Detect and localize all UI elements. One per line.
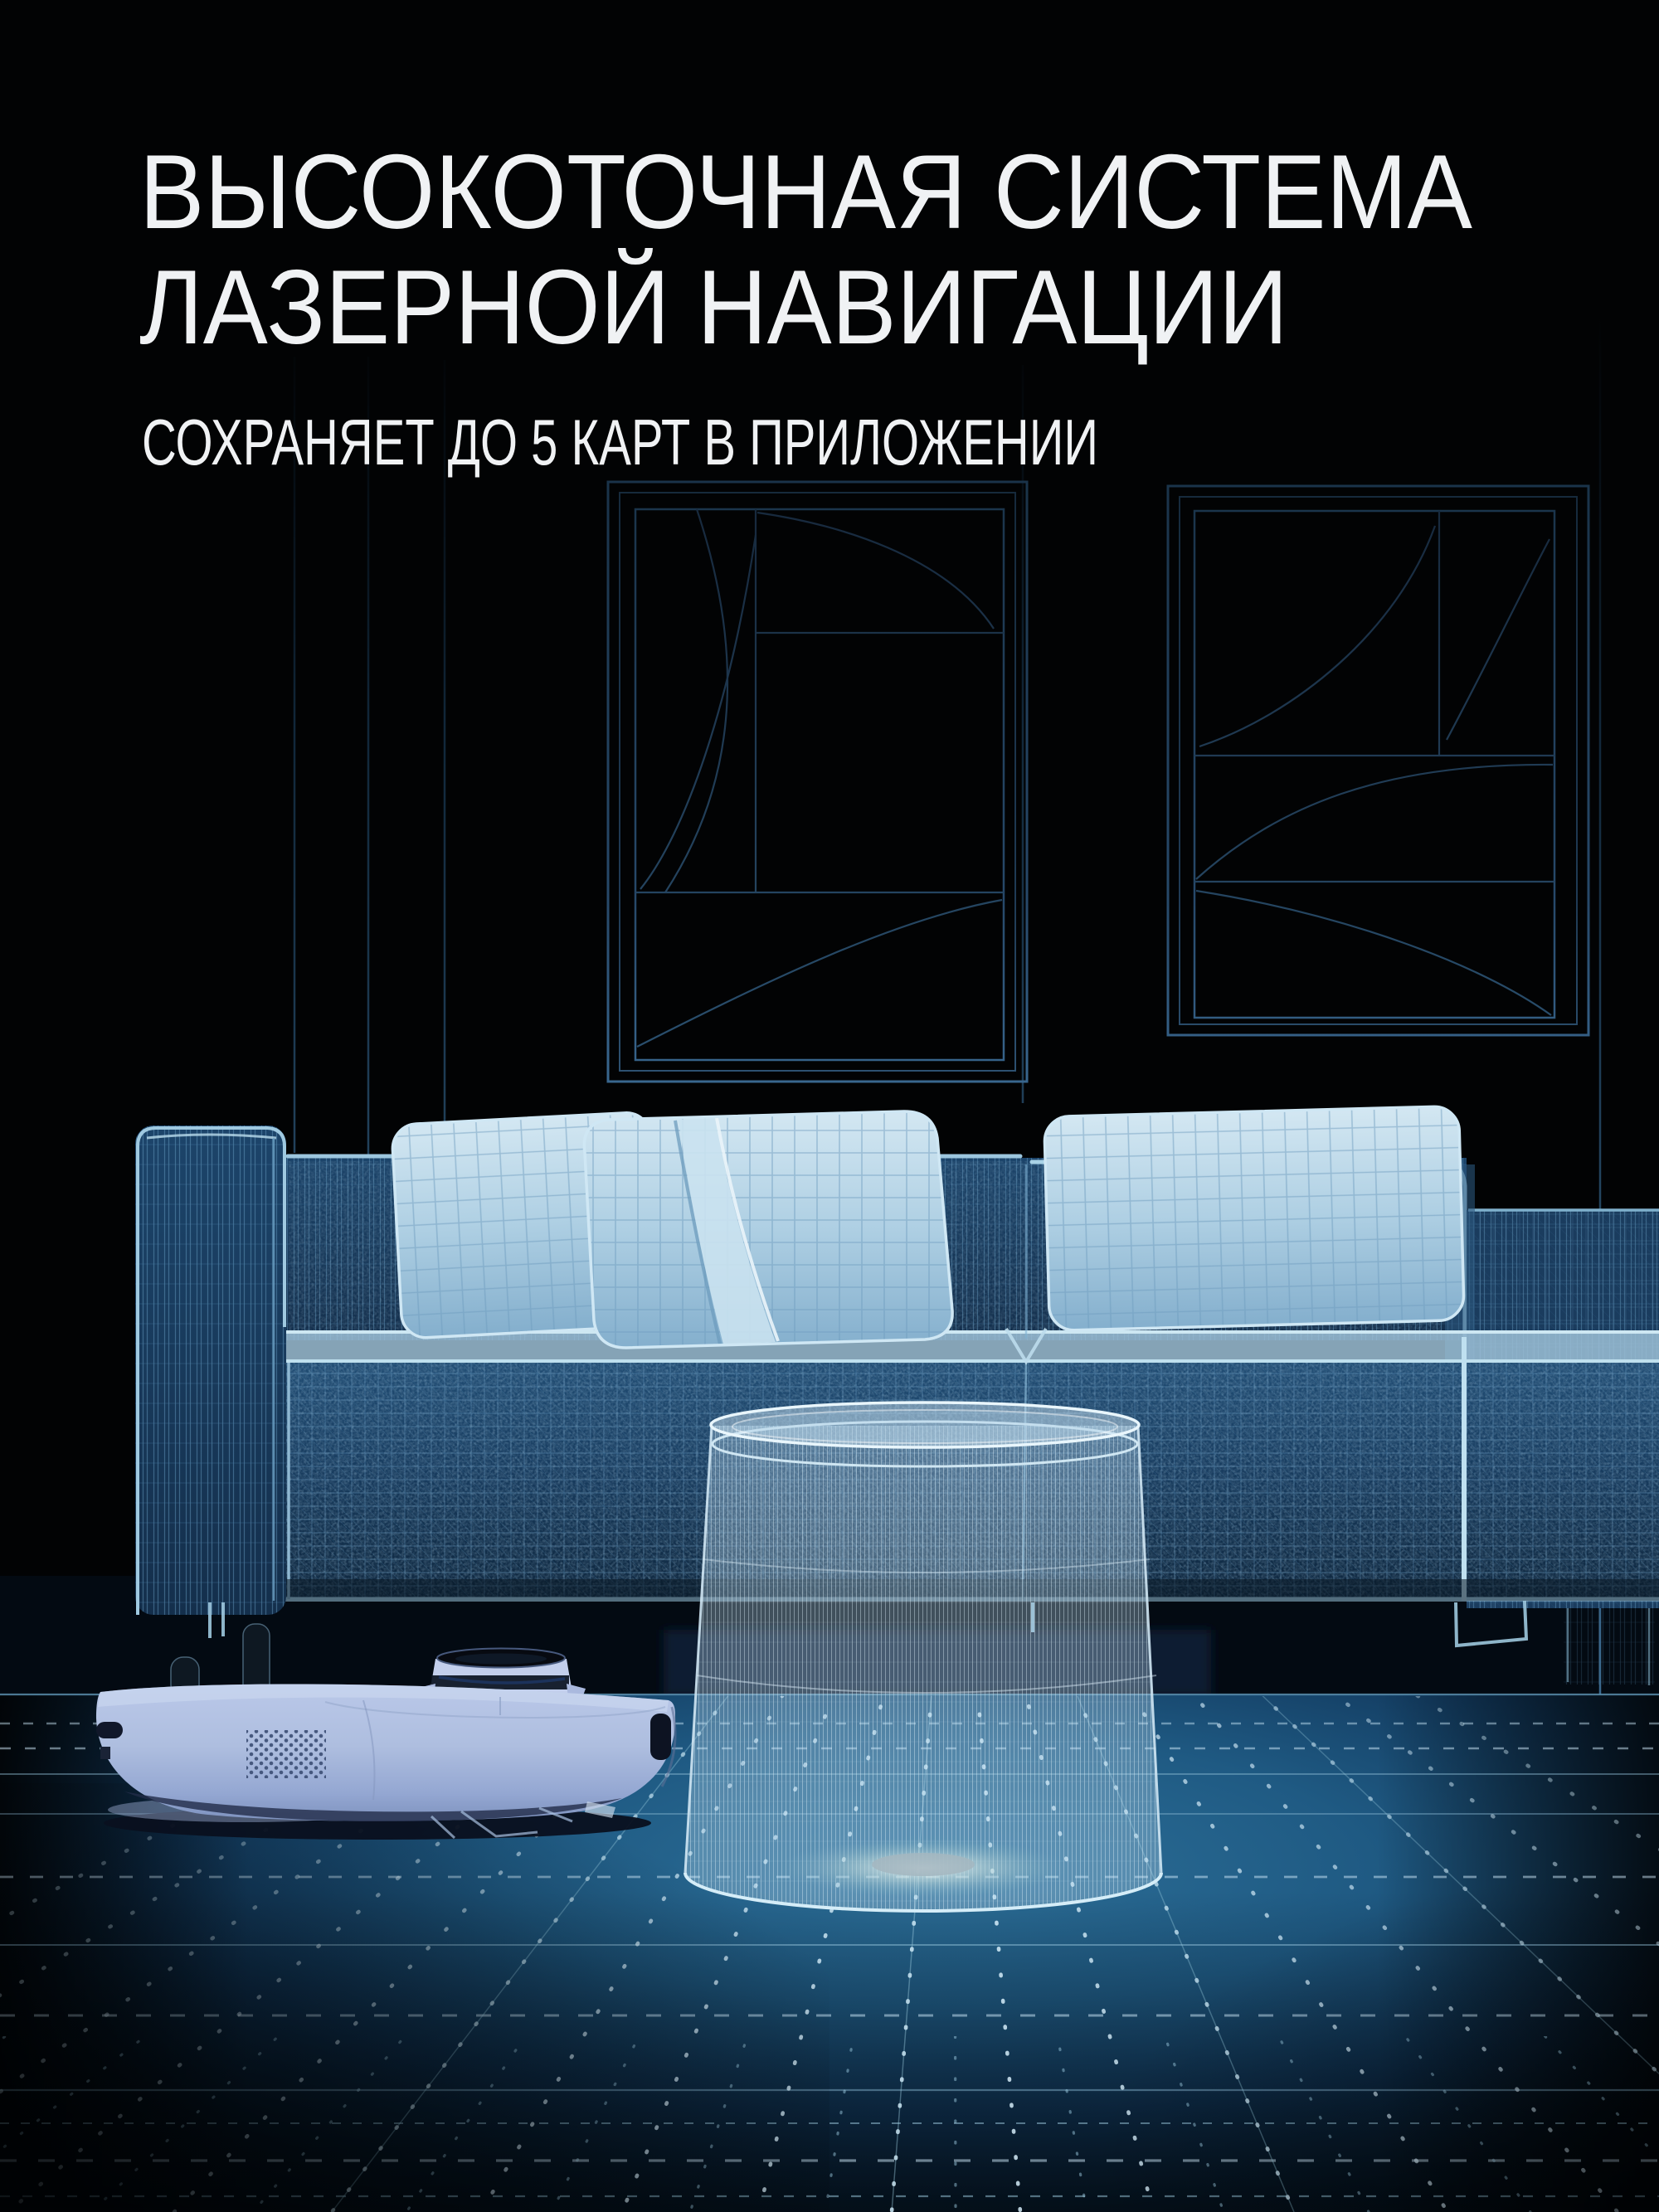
svg-text:ЛАЗЕРНОЙ НАВИГАЦИИ: ЛАЗЕРНОЙ НАВИГАЦИИ xyxy=(139,248,1288,366)
svg-text:СОХРАНЯЕТ ДО 5 КАРТ В ПРИЛОЖЕН: СОХРАНЯЕТ ДО 5 КАРТ В ПРИЛОЖЕНИИ xyxy=(142,406,1098,479)
svg-text:ВЫСОКОТОЧНАЯ СИСТЕМА: ВЫСОКОТОЧНАЯ СИСТЕМА xyxy=(139,133,1472,250)
